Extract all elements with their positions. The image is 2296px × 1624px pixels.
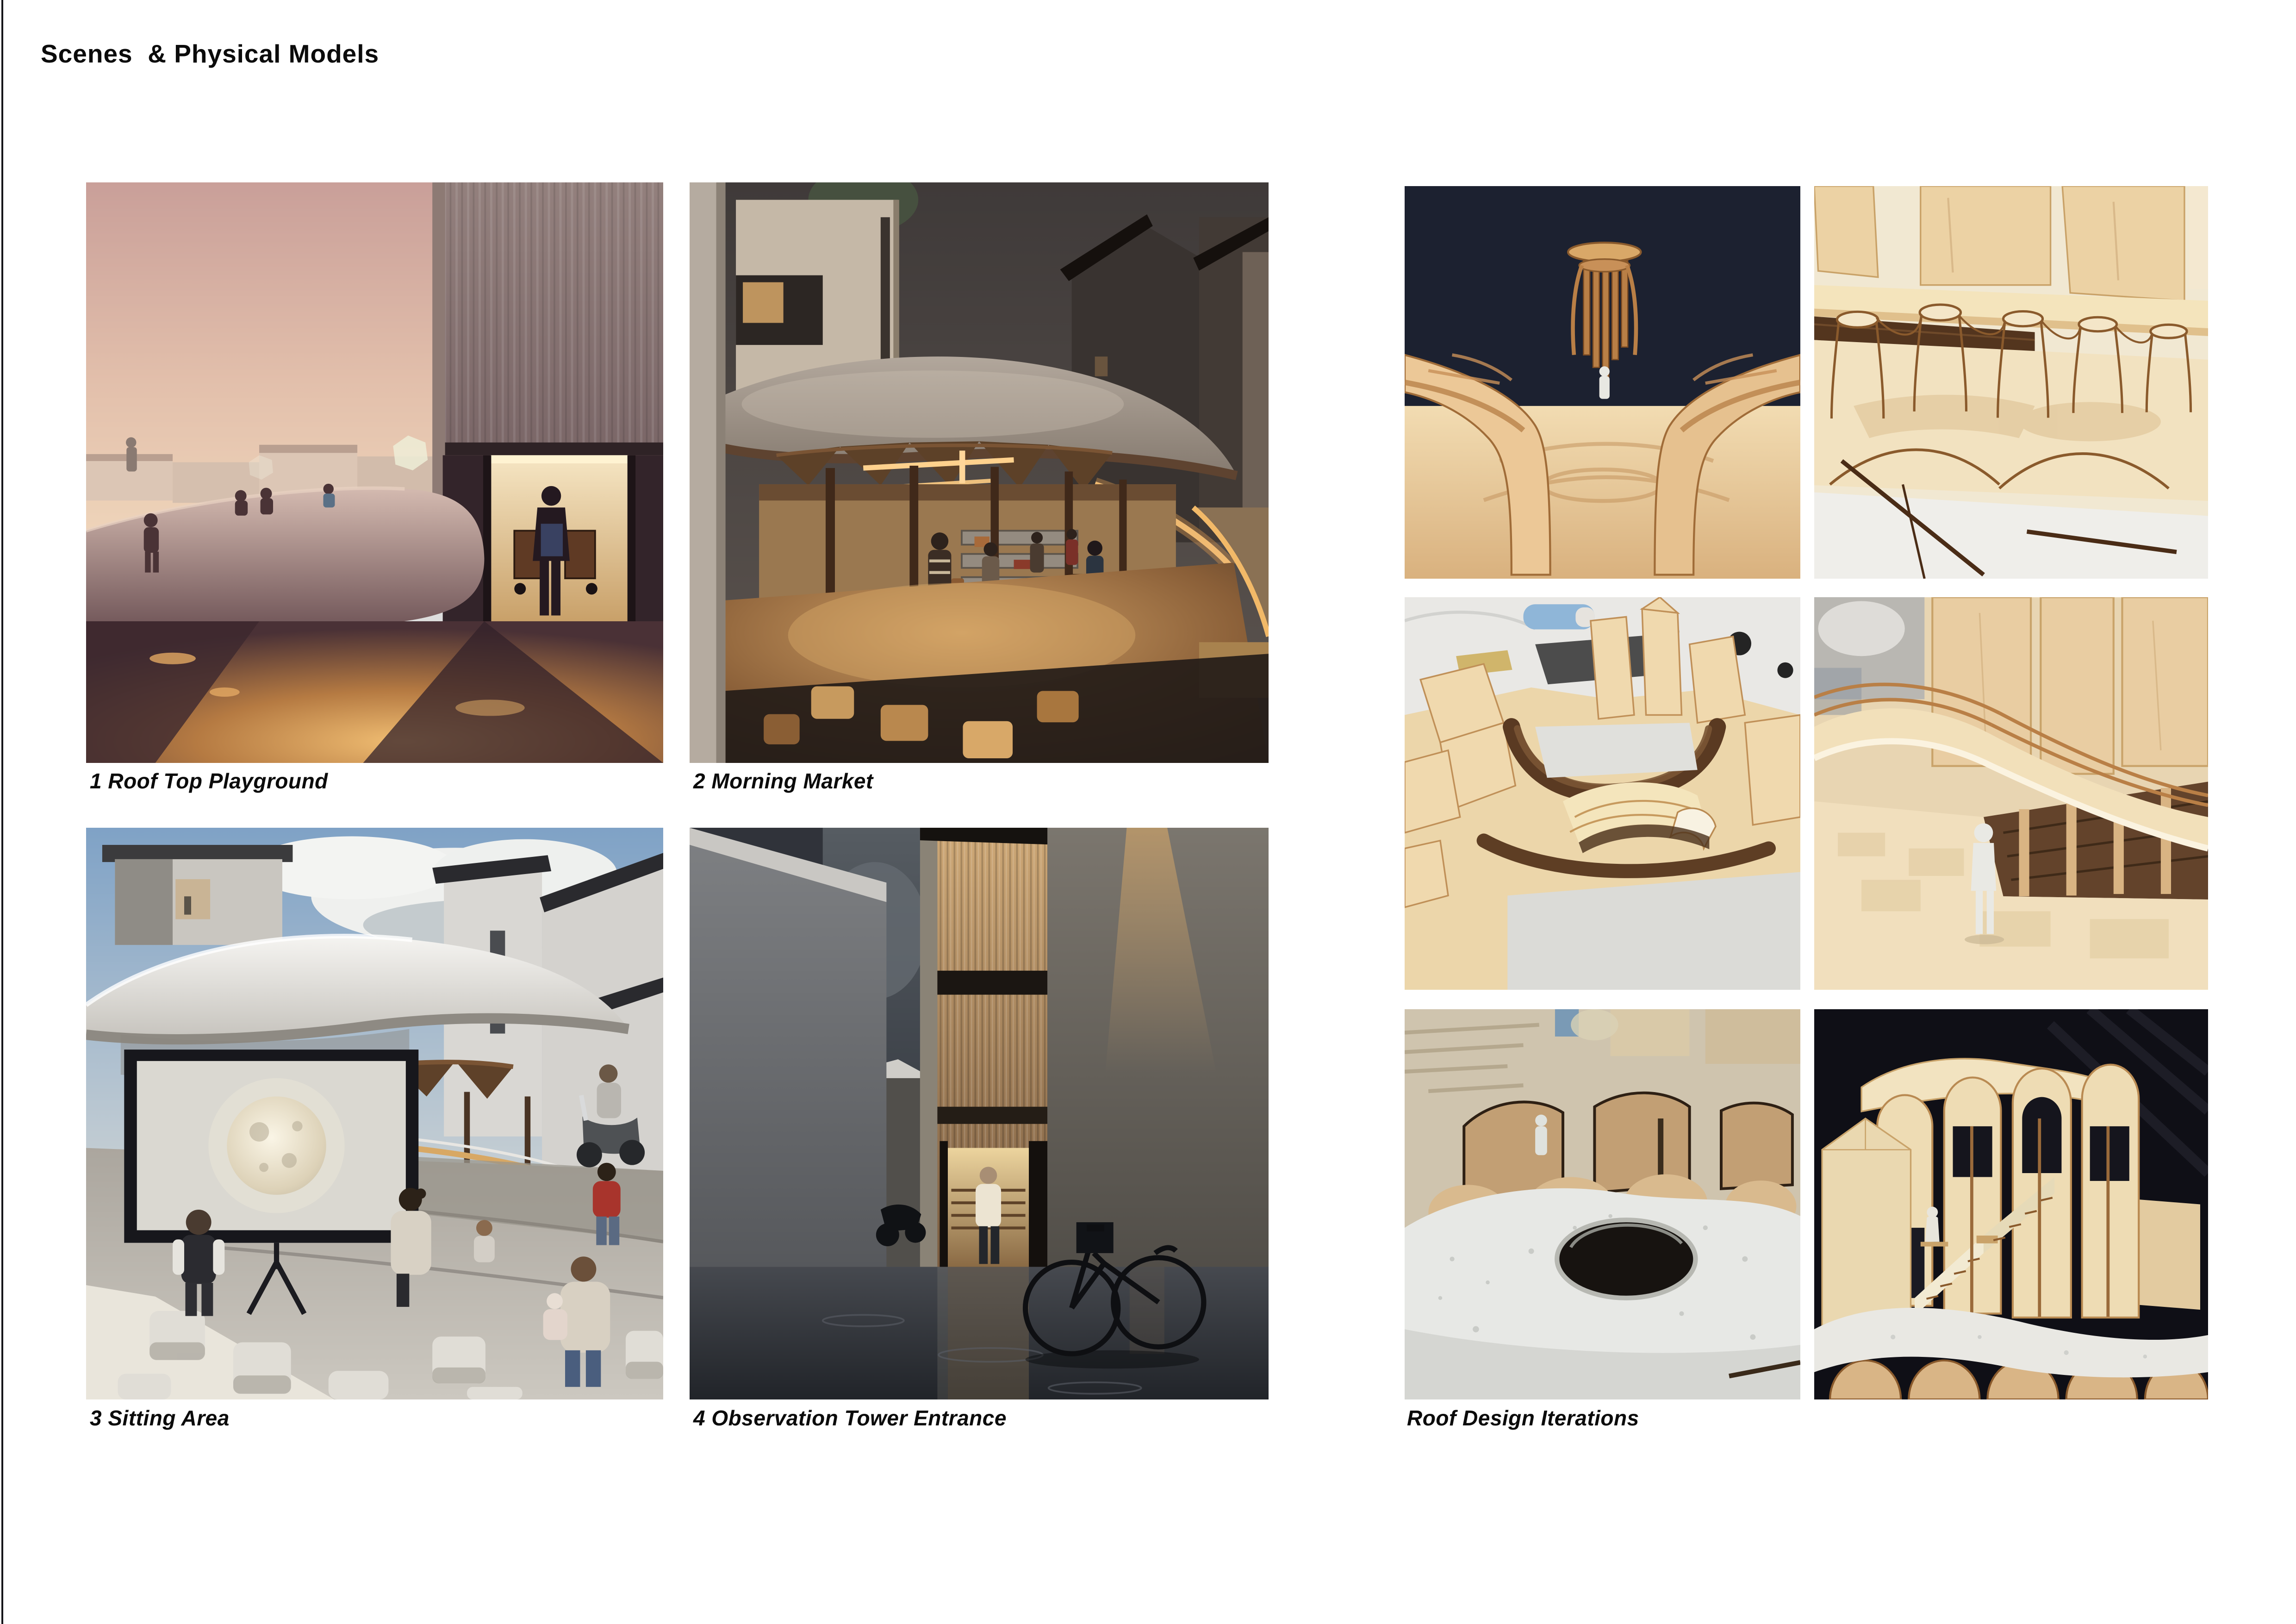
model-photo-1	[1405, 186, 1800, 579]
entrance-doorway	[940, 1141, 1047, 1267]
scene-render-observation-tower-entrance	[690, 828, 1269, 1399]
scene-caption-1: 1 Roof Top Playground	[90, 768, 328, 793]
plaster-roof	[1405, 1188, 1800, 1399]
scene-render-sitting-area	[86, 828, 663, 1399]
model-5-art	[1405, 1009, 1800, 1399]
scene-4-art	[690, 828, 1269, 1399]
model-photo-2	[1814, 186, 2208, 579]
model-photo-5	[1405, 1009, 1800, 1399]
model-2-art	[1814, 186, 2208, 579]
wet-floor	[690, 1267, 1269, 1399]
scale-figure	[1535, 1115, 1547, 1156]
scene-3-art	[86, 828, 663, 1399]
page-edge-line	[1, 0, 3, 1624]
blurry-background	[1814, 597, 1924, 715]
gabled-block	[1822, 1118, 1910, 1341]
page-title: Scenes & Physical Models	[41, 39, 379, 69]
scene-1-art	[86, 182, 663, 763]
model-photo-6	[1814, 1009, 2208, 1399]
scene-2-art	[690, 182, 1269, 763]
left-foreground-wall	[690, 182, 726, 763]
model-1-art	[1405, 186, 1800, 579]
courtyard-floor	[1535, 723, 1698, 778]
plywood-base	[1405, 406, 1800, 579]
model-4-art	[1814, 597, 2208, 990]
scene-caption-4: 4 Observation Tower Entrance	[693, 1405, 1007, 1430]
scene-render-morning-market	[690, 182, 1269, 763]
models-caption: Roof Design Iterations	[1407, 1405, 1639, 1430]
model-photo-3	[1405, 597, 1800, 990]
scene-caption-2: 2 Morning Market	[693, 768, 873, 793]
scene-render-rooftop-playground	[86, 182, 663, 763]
model-6-art	[1814, 1009, 2208, 1399]
left-tower	[102, 845, 293, 945]
scale-figure	[1599, 366, 1610, 399]
ground	[86, 621, 663, 763]
model-3-art	[1405, 597, 1800, 990]
model-photo-4	[1814, 597, 2208, 990]
scene-caption-3: 3 Sitting Area	[90, 1405, 230, 1430]
